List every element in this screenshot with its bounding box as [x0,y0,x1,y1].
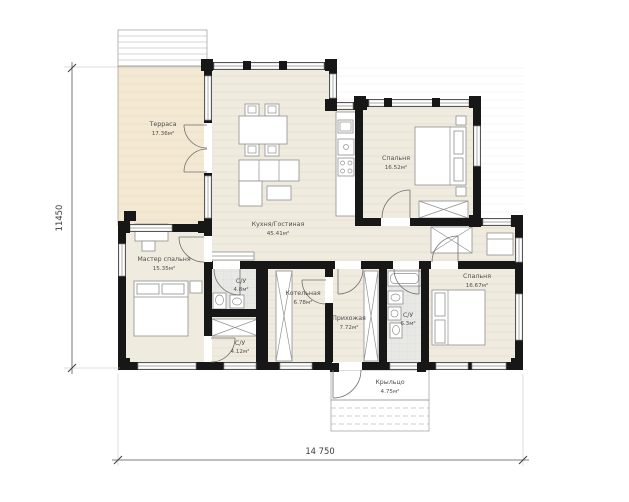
kitchen-living-label: Кухня/Гостиная [252,221,305,228]
bathtub [388,271,421,286]
terrace-area: 17.36м² [152,130,174,137]
master-bedroom-area: 15.35м² [153,265,175,272]
corridor-wardrobe [431,227,472,253]
hallway-area: 7.72м² [340,324,359,331]
washing-machine [388,307,401,320]
porch-area: 4.75м² [381,388,400,395]
bathroom-main-label: С/У [403,312,414,319]
nightstand [456,187,466,196]
dimension-horizontal: 14 750 [305,446,334,456]
bed-right-bedroom [432,290,485,345]
porch-label: Крыльцо [375,379,404,386]
washbasin [388,291,403,304]
entrance-door [333,370,361,398]
washbasin [230,295,244,308]
bathroom-small-area: 4.8м² [233,286,248,293]
bed-top-bedroom [415,116,466,196]
kitchen-living-area: 45.41м² [267,230,289,237]
nightstand [456,116,466,125]
cooktop [338,158,354,176]
bathroom-master-label: С/У [235,340,246,347]
boiler-room-area: 6.78м² [294,299,313,306]
floor-plan-canvas: Терраса 17.36м² Кухня/Гостиная 45.41м² С… [0,0,629,502]
bathroom-small-label: С/У [236,278,247,285]
vanity-table [487,233,513,255]
bedroom-right-label: Спальня [463,273,491,280]
coffee-table [267,186,291,200]
boiler-room-label: Котельная [285,290,321,297]
hallway-closet [364,271,378,361]
bathroom-master-area: 4.12м² [231,348,250,355]
porch-steps [331,400,429,431]
tv-stand [208,252,254,260]
toilet [213,293,226,309]
hallway-label: Прихожая [332,315,366,322]
nightstand [190,281,202,293]
bedroom-right-area: 16.67м² [466,282,488,289]
boiler-unit [276,271,292,361]
floor-plan: Терраса 17.36м² Кухня/Гостиная 45.41м² С… [0,0,629,502]
bathroom-main-area: 6.3м² [400,320,415,327]
oven [338,139,354,155]
kitchen-counter [336,112,356,216]
dimension-vertical: 11450 [54,205,64,232]
terrace-texture [118,66,207,225]
deck-lines [118,36,207,60]
wardrobe-top-bedroom [419,201,468,218]
steps-lines [331,408,429,424]
master-bedroom-label: Мастер спальня [137,256,191,263]
bedroom-top-area: 16.52м² [385,164,407,171]
bathroom-master-wardrobe [212,319,258,336]
bedroom-top-label: Спальня [382,155,410,162]
terrace-label: Терраса [149,121,177,128]
